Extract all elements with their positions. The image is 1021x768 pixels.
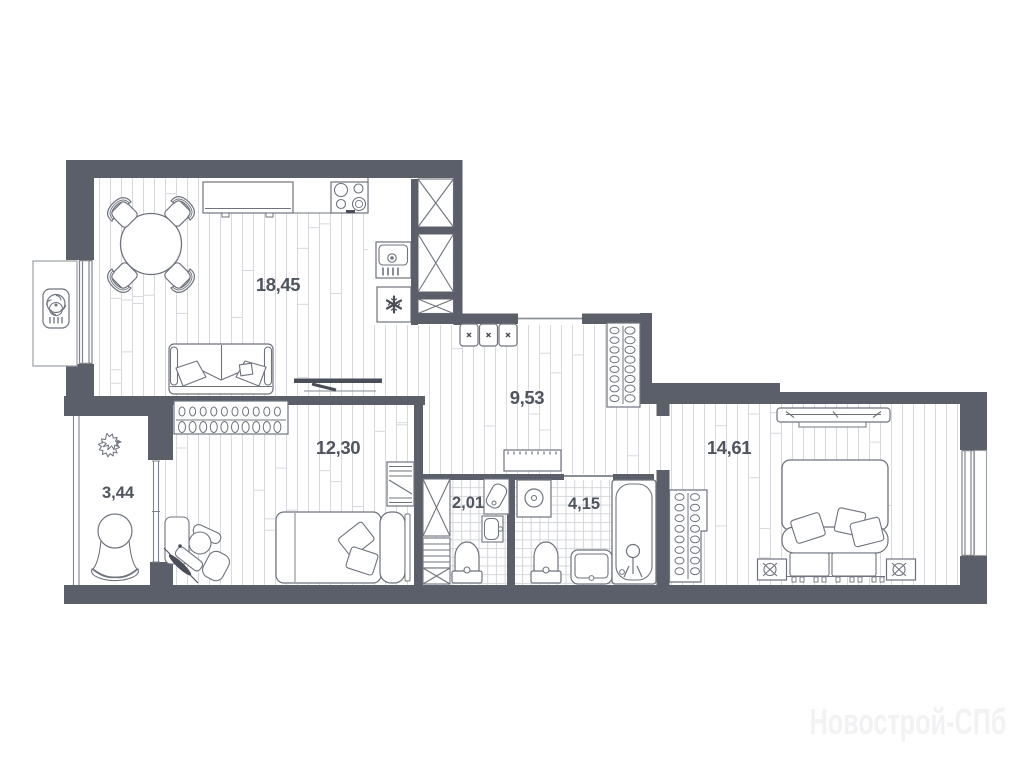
svg-text:9,53: 9,53 [510, 387, 545, 408]
svg-text:14,61: 14,61 [707, 437, 751, 458]
svg-text:Новострой-СПб: Новострой-СПб [810, 701, 1007, 742]
svg-text:2,01: 2,01 [452, 494, 484, 512]
svg-text:3,44: 3,44 [102, 484, 135, 502]
svg-text:4,15: 4,15 [568, 495, 600, 513]
svg-text:18,45: 18,45 [256, 274, 300, 295]
svg-text:12,30: 12,30 [316, 437, 360, 458]
